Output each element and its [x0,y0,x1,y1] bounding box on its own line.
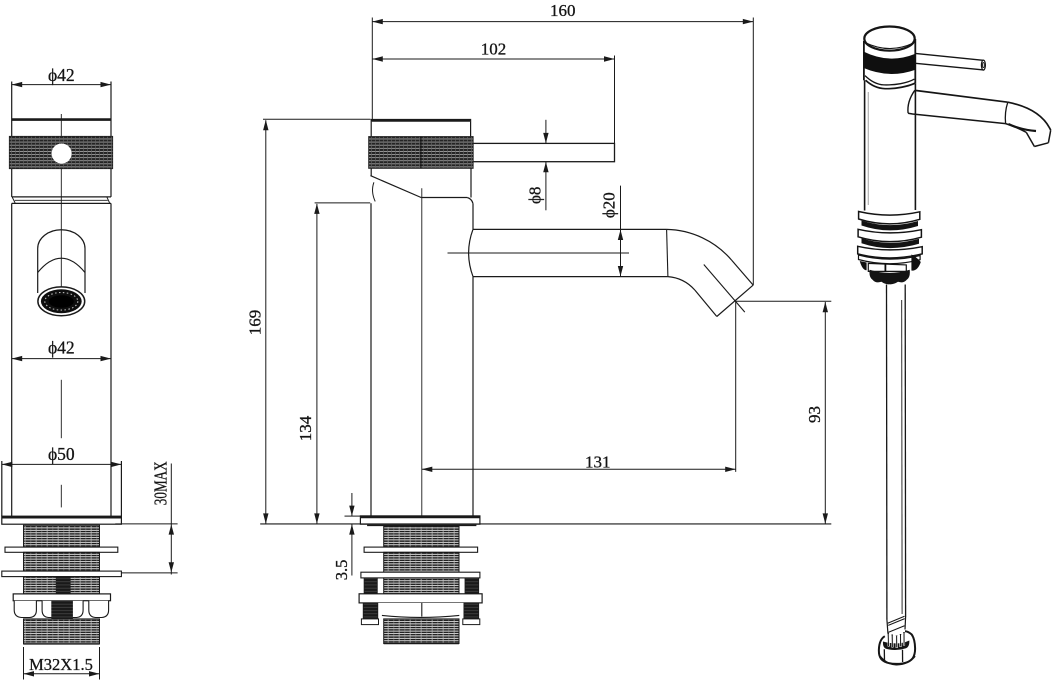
svg-text:3.5: 3.5 [332,560,351,581]
svg-text:ϕ20: ϕ20 [600,192,619,218]
svg-text:102: 102 [481,40,507,59]
svg-text:ϕ42: ϕ42 [48,65,75,85]
svg-text:ϕ50: ϕ50 [48,444,75,464]
svg-text:30MAX: 30MAX [152,461,171,505]
svg-text:M32X1.5: M32X1.5 [29,655,93,674]
svg-text:ϕ42: ϕ42 [48,338,75,358]
svg-text:169: 169 [246,310,265,336]
svg-text:ϕ8: ϕ8 [525,187,544,204]
svg-text:160: 160 [550,1,576,20]
svg-text:134: 134 [296,415,315,441]
svg-text:93: 93 [805,406,824,423]
svg-text:131: 131 [585,453,611,472]
